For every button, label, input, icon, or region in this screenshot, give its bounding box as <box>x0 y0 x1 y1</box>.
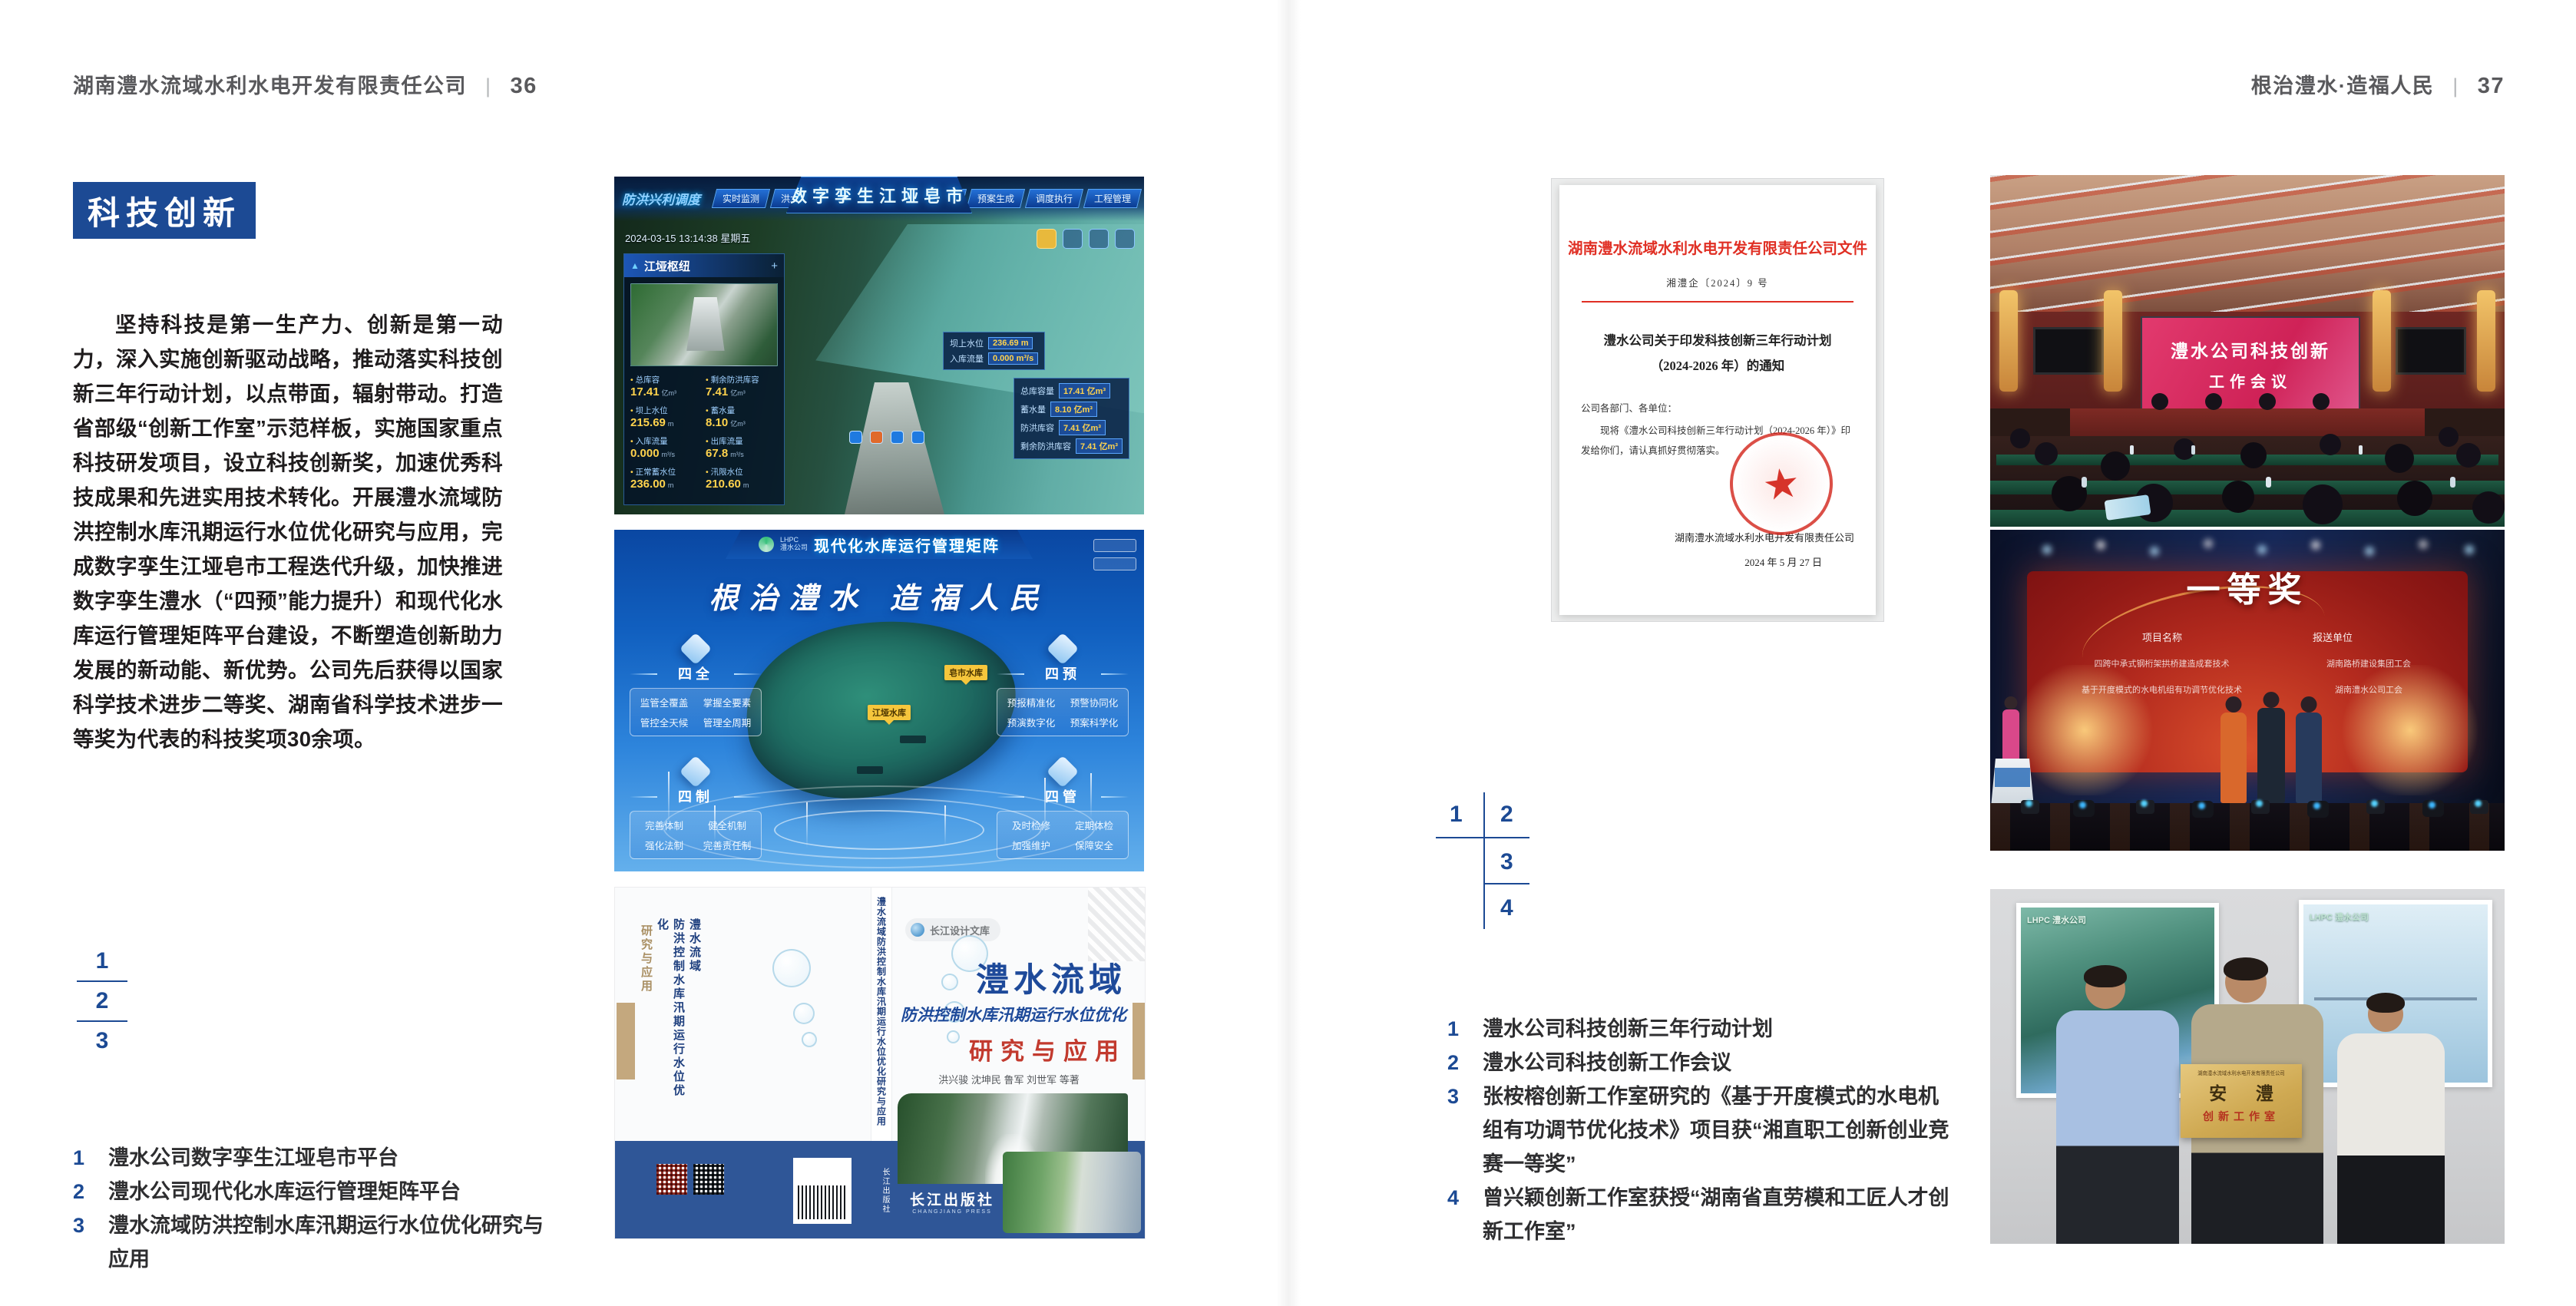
series-logo-icon <box>911 923 924 937</box>
column-unit: 报送单位 <box>2313 630 2353 644</box>
figure-index-right: 1 2 3 4 <box>1436 783 1612 933</box>
corner-pattern <box>1088 888 1145 961</box>
seal-star-icon: ★ <box>1760 457 1804 510</box>
tab: 调度执行 <box>1025 189 1083 208</box>
person-head <box>2368 997 2403 1032</box>
left-running-head: 湖南澧水流域水利水电开发有限责任公司|36 <box>73 69 537 99</box>
timestamp: 2024-03-15 13:14:38 星期五 <box>625 230 750 245</box>
document-red-header: 湖南澧水流域水利水电开发有限责任公司文件 <box>1559 236 1876 258</box>
screen-column-headers: 项目名称 报送单位 <box>1990 630 2505 644</box>
toolbar-icons <box>1037 229 1135 249</box>
company-logo-text: LHPC澧水公司 <box>780 537 808 552</box>
barcode <box>793 1158 852 1224</box>
caption-number: 1 <box>73 1141 108 1175</box>
user-icon <box>1037 229 1057 249</box>
poster-logo: LHPC 澧水公司 <box>2027 914 2086 926</box>
figure-workshop-group-photo: LHPC 澧水公司 LHPC 澧水公司 湖南澧水流域水利水电开发有限责任公司 安… <box>1990 889 2505 1244</box>
light-pillar <box>806 802 808 848</box>
light-lenses <box>1995 530 2002 537</box>
map-pin-icons <box>849 431 924 444</box>
light-pillar <box>944 805 946 845</box>
series-badge: 长江设计文库 <box>905 918 1000 941</box>
book-title-tail: 研究与应用 <box>922 1032 1126 1066</box>
dashboard-title: 数字孪生江垭皂市 <box>786 177 972 213</box>
poster-logo: LHPC 澧水公司 <box>2310 911 2369 923</box>
screen-title-line2: 工作会议 <box>2209 369 2292 392</box>
stat: 坝上水位215.69m <box>630 405 703 430</box>
book-title-main: 澧水流域 <box>922 954 1126 1001</box>
station-icon: ▲ <box>630 260 640 271</box>
slogan-calligraphy: 根治澧水 造福人民 <box>614 574 1144 617</box>
figure-index-number: 2 <box>1500 802 1513 828</box>
map-marker: 皂市水库 <box>944 665 987 680</box>
amber-lamp <box>1999 290 2018 392</box>
meeting-ceiling <box>1990 175 2505 312</box>
figure-management-matrix: LHPC澧水公司 现代化水库运行管理矩阵 根治澧水 造福人民 皂市水库 江垭水库… <box>614 530 1144 871</box>
map-marker-small <box>900 736 926 743</box>
matrix-title: 现代化水库运行管理矩阵 <box>814 534 1000 556</box>
document-number: 湘澧企〔2024〕9 号 <box>1559 275 1876 289</box>
stat: 蓄水量8.10亿m³ <box>706 405 778 430</box>
company-logo-icon <box>759 537 774 552</box>
caption-row: 1 澧水公司数字孪生江垭皂市平台 <box>73 1141 549 1175</box>
book-authors: 洪兴骏 沈坤民 鲁军 刘世军 等著 <box>891 1072 1126 1086</box>
caption-row: 2 澧水公司现代化水库运行管理矩阵平台 <box>73 1175 549 1208</box>
caption-number: 1 <box>1447 1012 1483 1046</box>
figure-award-stage-photo: 一等奖 项目名称 报送单位 四跨中承式钢桁架拱桥建造成套技术湖南路桥建设集团工会… <box>1990 530 2505 851</box>
screen-row: 四跨中承式钢桁架拱桥建造成套技术湖南路桥建设集团工会 <box>2039 657 2462 670</box>
column-project: 项目名称 <box>2142 630 2182 644</box>
figure-index-number: 4 <box>1500 895 1513 921</box>
map-marker: 江垭水库 <box>868 705 911 720</box>
tab: 实时监测 <box>712 189 770 208</box>
light-pillar <box>714 805 716 841</box>
publisher-mark: 长江出版社 CHANGJIANG PRESS <box>905 1189 999 1215</box>
light-pillar <box>668 772 670 825</box>
book-title-sub: 防洪控制水库汛期运行水位优化 <box>893 1003 1126 1026</box>
right-header-motto: 根治澧水·造福人民 <box>2251 74 2435 98</box>
layers-icon <box>1063 229 1083 249</box>
index-divider <box>77 1020 127 1022</box>
stat: 汛限水位210.60m <box>706 466 778 491</box>
back-cover-tan-block <box>617 1003 635 1080</box>
figure-index-number: 3 <box>1500 849 1513 875</box>
publisher-name: 长江出版社 <box>905 1189 999 1209</box>
green-desk-row <box>1990 510 2505 527</box>
caption-number: 3 <box>1447 1080 1483 1181</box>
document-red-rule <box>1582 301 1853 303</box>
innovation-workshop-plaque: 湖南澧水流域水利水电开发有限责任公司 安 澧 创新工作室 <box>2181 1064 2302 1138</box>
module-label: 防洪兴利调度 <box>622 189 700 208</box>
light-pillar <box>1044 778 1046 835</box>
caption-row: 2 澧水公司科技创新工作会议 <box>1447 1046 1950 1080</box>
caption-text: 曾兴颖创新工作室获授“湖南省直劳模和工匠人才创新工作室” <box>1483 1181 1950 1248</box>
caption-text: 澧水公司数字孪生江垭皂市平台 <box>108 1141 398 1175</box>
awardee-orange <box>2221 713 2247 803</box>
caption-text: 澧水公司科技创新三年行动计划 <box>1483 1012 1773 1046</box>
index-line-vertical <box>1483 792 1485 929</box>
screen-title-line1: 澧水公司科技创新 <box>2171 336 2330 362</box>
wall-tv <box>2396 327 2466 375</box>
station-stats: 总库容17.41亿m³ 剩余防洪库容7.41亿m³ 坝上水位215.69m 蓄水… <box>624 372 784 493</box>
station-name: 江垭枢纽 <box>644 258 690 274</box>
panel-icon <box>680 633 712 665</box>
panel-icon <box>680 755 712 788</box>
section-title-box: 科技创新 <box>73 182 256 239</box>
caption-row: 4 曾兴颖创新工作室获授“湖南省直劳模和工匠人才创新工作室” <box>1447 1181 1950 1248</box>
right-page-number: 37 <box>2478 74 2505 98</box>
stage-floor <box>1990 803 2505 851</box>
stat: 剩余防洪库容7.41亿m³ <box>706 374 778 399</box>
amber-lamp <box>2477 290 2495 392</box>
person-left-torso <box>2056 1010 2179 1244</box>
rostrum-table <box>2070 408 2425 436</box>
wall-tv <box>2033 327 2104 375</box>
stat: 入库流量0.000m³/s <box>630 435 703 461</box>
menu-button <box>1093 557 1136 570</box>
caption-row: 1 澧水公司科技创新三年行动计划 <box>1447 1012 1950 1046</box>
plaque-name: 安 澧 <box>2181 1079 2302 1105</box>
figure-index-number: 2 <box>77 987 127 1015</box>
caption-text: 澧水流域防洪控制水库汛期运行水位优化研究与应用 <box>108 1208 549 1276</box>
tab: 工程管理 <box>1083 189 1142 208</box>
presidium-member <box>2205 393 2222 410</box>
water-bubble <box>802 1032 817 1047</box>
figure-index-number: 1 <box>1450 802 1463 828</box>
panel-icon <box>1047 755 1079 788</box>
document-title-line1: 澧水公司关于印发科技创新三年行动计划 <box>1559 330 1876 349</box>
qr-code <box>693 1164 724 1195</box>
screen-row: 基于开度模式的水电机组有功调节优化技术湖南澧水公司工会 <box>2039 683 2462 696</box>
back-cover-title: 澧水流域 防洪控制水库汛期运行水位优化 研究与应用 <box>638 918 703 1099</box>
book-spine: 澧水流域防洪控制水库汛期运行水位优化研究与应用 <box>871 888 892 1141</box>
document-salutation: 公司各部门、各单位： <box>1581 400 1854 415</box>
green-desk-row <box>1990 481 2505 494</box>
stat: 正常蓄水位236.00m <box>630 466 703 491</box>
panel-icon <box>1047 633 1079 665</box>
light-pillar <box>1090 773 1092 818</box>
tab: 预案生成 <box>967 189 1025 208</box>
left-header-company: 湖南澧水流域水利水电开发有限责任公司 <box>73 74 467 98</box>
left-header-separator: | <box>485 74 492 98</box>
dam-structure <box>845 382 944 514</box>
page-gutter-shadow <box>1276 0 1301 1306</box>
figure-index-left: 1 2 3 <box>77 947 127 1055</box>
caption-number: 2 <box>73 1175 108 1208</box>
index-line-horizontal <box>1483 883 1529 884</box>
presidium-member <box>2259 393 2276 410</box>
publisher-name-en: CHANGJIANG PRESS <box>905 1209 999 1215</box>
map-marker-small <box>857 766 883 774</box>
awardee-navy <box>2296 713 2322 803</box>
panel-title: 四预 <box>997 663 1129 683</box>
caption-text: 澧水公司科技创新工作会议 <box>1483 1046 1731 1080</box>
dam-landscape-photo <box>1003 1152 1141 1233</box>
captions-left: 1 澧水公司数字孪生江垭皂市平台 2 澧水公司现代化水库运行管理矩阵平台 3 澧… <box>73 1141 549 1276</box>
caption-text: 澧水公司现代化水库运行管理矩阵平台 <box>108 1175 461 1208</box>
document-date: 2024 年 5 月 27 日 <box>1744 554 1822 569</box>
fullscreen-button <box>1093 539 1136 552</box>
figure-index-number: 3 <box>77 1027 127 1055</box>
green-desk-row <box>1996 455 2498 465</box>
locate-icon <box>1089 229 1109 249</box>
document-page: 湖南澧水流域水利水电开发有限责任公司文件 湘澧企〔2024〕9 号 澧水公司关于… <box>1559 185 1876 615</box>
index-divider <box>77 980 127 982</box>
section-title: 科技创新 <box>88 187 241 234</box>
body-paragraph: 坚持科技是第一生产力、创新是第一动力，深入实施创新驱动战略，推动落实科技创新三年… <box>73 307 503 756</box>
series-name: 长江设计文库 <box>930 923 990 937</box>
figure-index-number: 1 <box>77 947 127 975</box>
award-title: 一等奖 <box>1990 562 2505 611</box>
settings-icon <box>1115 229 1135 249</box>
stat: 总库容17.41亿m³ <box>630 374 703 399</box>
expand-icon: + <box>771 260 778 273</box>
caption-number: 2 <box>1447 1046 1483 1080</box>
plaque-organization: 湖南澧水流域水利水电开发有限责任公司 <box>2187 1070 2296 1077</box>
spine-publisher: 长江出版社 <box>871 1150 891 1231</box>
right-running-head: 根治澧水·造福人民|37 <box>2251 69 2505 99</box>
front-cover-tan-block <box>1133 1003 1145 1080</box>
person-head <box>2085 969 2125 1009</box>
caption-number: 4 <box>1447 1181 1483 1248</box>
water-bubble <box>793 1003 815 1024</box>
right-header-separator: | <box>2452 74 2459 98</box>
index-line-horizontal <box>1436 837 1529 838</box>
presenter-suit <box>2257 708 2285 803</box>
figure-book-cover: 澧水流域 防洪控制水库汛期运行水位优化 研究与应用 澧水流域防洪控制水库汛期运行… <box>614 887 1146 1239</box>
qr-code <box>656 1164 687 1195</box>
caption-number: 3 <box>73 1208 108 1276</box>
figure-official-document: 湖南澧水流域水利水电开发有限责任公司文件 湘澧企〔2024〕9 号 澧水公司关于… <box>1551 178 1884 622</box>
caption-text: 张桉榕创新工作室研究的《基于开度模式的水电机组有功调节优化技术》项目获“湘直职工… <box>1483 1080 1950 1181</box>
person-right-torso <box>2337 1033 2445 1244</box>
map-popup: 总库容量17.41 亿m³ 蓄水量8.10 亿m³ 防洪库容7.41 亿m³ 剩… <box>1014 378 1129 459</box>
panel-title: 四全 <box>630 663 762 683</box>
left-page-number: 36 <box>511 74 537 98</box>
presidium-member <box>2313 393 2330 410</box>
panel-siyu: 四预 预报精准化预警协同化 预演数字化预案科学化 <box>997 637 1129 736</box>
person-head <box>2225 961 2267 1003</box>
caption-row: 3 澧水流域防洪控制水库汛期运行水位优化研究与应用 <box>73 1208 549 1276</box>
captions-right: 1 澧水公司科技创新三年行动计划 2 澧水公司科技创新工作会议 3 张桉榕创新工… <box>1447 1012 1950 1248</box>
document-title-line2: （2024-2026 年）的通知 <box>1559 355 1876 374</box>
spine-title: 澧水流域防洪控制水库汛期运行水位优化研究与应用 <box>875 897 888 1141</box>
dam-thumbnail <box>630 283 778 366</box>
amber-lamp <box>2104 290 2122 392</box>
water-bottles <box>1990 175 1994 184</box>
station-panel: ▲ 江垭枢纽 + 总库容17.41亿m³ 剩余防洪库容7.41亿m³ 坝上水位2… <box>623 253 785 505</box>
amber-lamp <box>2373 290 2391 392</box>
station-panel-header: ▲ 江垭枢纽 + <box>624 254 784 277</box>
caption-row: 3 张桉榕创新工作室研究的《基于开度模式的水电机组有功调节优化技术》项目获“湘直… <box>1447 1080 1950 1181</box>
presidium-member <box>2151 393 2168 410</box>
stat: 出库流量67.8m³/s <box>706 435 778 461</box>
panel-siquan: 四全 监管全覆盖掌握全要素 管控全天候管理全周期 <box>630 637 762 736</box>
figure-digital-twin-dashboard: 防洪兴利调度 实时监测 洪水预报 防洪预警 数字孪生江垭皂市 隐患预测 预案生成… <box>614 177 1144 514</box>
figure-meeting-photo: 澧水公司科技创新 工作会议 <box>1990 175 2505 527</box>
plaque-subtitle: 创新工作室 <box>2181 1109 2302 1124</box>
matrix-header: LHPC澧水公司 现代化水库运行管理矩阵 <box>726 530 1033 559</box>
map-popup: 坝上水位236.69 m 入库流量0.000 m³/s <box>943 332 1045 370</box>
water-bubble <box>772 949 811 987</box>
